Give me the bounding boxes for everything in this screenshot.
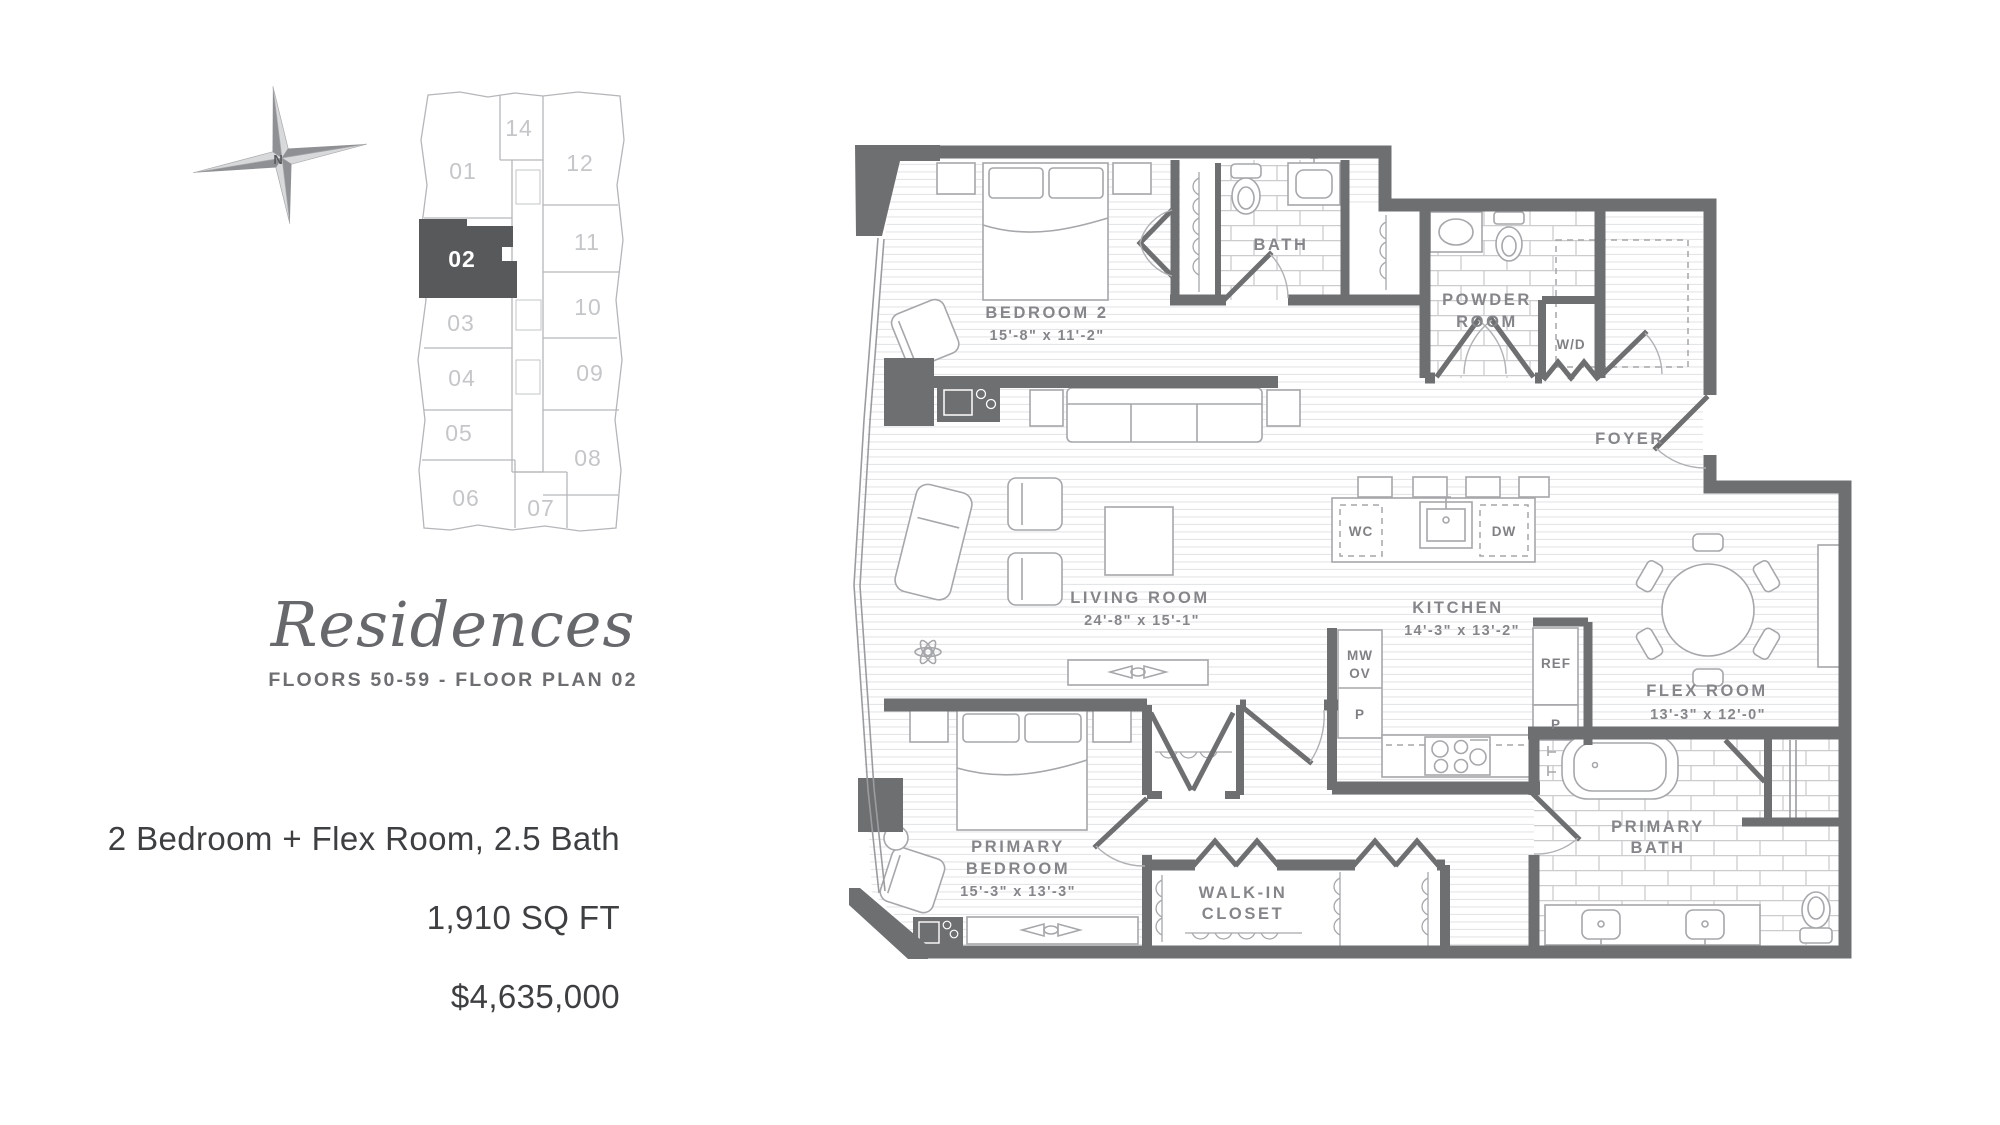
keyplan-unit-10: 10 [574,294,602,320]
room-dims-living: 24'-8" x 15'-1" [1084,613,1200,629]
room-label-pbath-2: BATH [1630,839,1685,857]
unit-specs: 2 Bedroom + Flex Room, 2.5 Bath 1,910 SQ… [78,822,620,1059]
keyplan-unit-01: 01 [449,158,477,184]
room-label-bath: BATH [1253,236,1308,254]
label-p-upper: P [1355,707,1365,722]
keyplan-unit-04: 04 [448,365,476,391]
label-ov: OV [1349,666,1371,681]
label-mw: MW [1347,648,1373,663]
room-label-primary-1: PRIMARY [971,838,1065,856]
keyplan-unit-14: 14 [505,115,533,141]
room-dims-flex: 13'-3" x 12'-0" [1650,707,1766,723]
label-wc: WC [1349,524,1374,539]
room-label-bedroom-2: BEDROOM 2 [985,304,1108,322]
keyplan-unit-02: 02 [448,246,476,272]
page-title: Residences [248,592,658,657]
spec-area: 1,910 SQ FT [78,901,620,934]
spec-configuration: 2 Bedroom + Flex Room, 2.5 Bath [78,822,620,855]
compass-north-label: N [273,152,282,167]
room-label-primary-2: BEDROOM [966,860,1070,878]
room-dims-primary: 15'-3" x 13'-3" [960,884,1076,900]
room-dims-kitchen: 14'-3" x 13'-2" [1404,623,1520,639]
label-dw: DW [1492,524,1517,539]
keyplan-unit-12: 12 [566,150,594,176]
room-label-powder-2: ROOM [1456,313,1518,331]
title-block: Residences FLOORS 50-59 - FLOOR PLAN 02 [248,592,658,692]
keyplan-unit-08: 08 [574,445,602,471]
label-wd: W/D [1556,337,1585,352]
room-label-powder-1: POWDER [1442,291,1532,309]
keyplan-unit-11: 11 [574,229,600,255]
keyplan-unit-06: 06 [452,485,480,511]
building-keyplan: 01 14 12 11 02 03 10 04 09 05 08 06 07 [400,85,640,550]
bedroom2-media-console [937,383,1000,422]
keyplan-unit-09: 09 [576,360,604,386]
room-label-flex: FLEX ROOM [1646,682,1767,700]
spec-price: $4,635,000 [78,980,620,1013]
keyplan-unit-03: 03 [447,310,475,336]
floorplan-page: N 01 14 12 11 02 03 10 04 09 05 08 06 07… [0,0,2000,1125]
compass-rose: N [182,68,382,253]
label-p-lower: P [1551,717,1561,732]
page-subtitle: FLOORS 50-59 - FLOOR PLAN 02 [248,669,658,692]
keyplan-unit-07: 07 [527,495,555,521]
label-ref: REF [1541,656,1571,671]
room-label-living: LIVING ROOM [1070,589,1210,607]
room-label-pbath-1: PRIMARY [1611,818,1705,836]
keyplan-unit-05: 05 [445,420,473,446]
room-label-wic-1: WALK-IN [1199,884,1288,902]
room-label-wic-2: CLOSET [1202,905,1285,923]
room-dims-bedroom-2: 15'-8" x 11'-2" [989,328,1104,344]
room-label-kitchen: KITCHEN [1412,599,1504,617]
room-label-foyer: FOYER [1595,430,1665,448]
floor-plan: BEDROOM 2 15'-8" x 11'-2" BATH POWDER RO… [848,135,1868,980]
